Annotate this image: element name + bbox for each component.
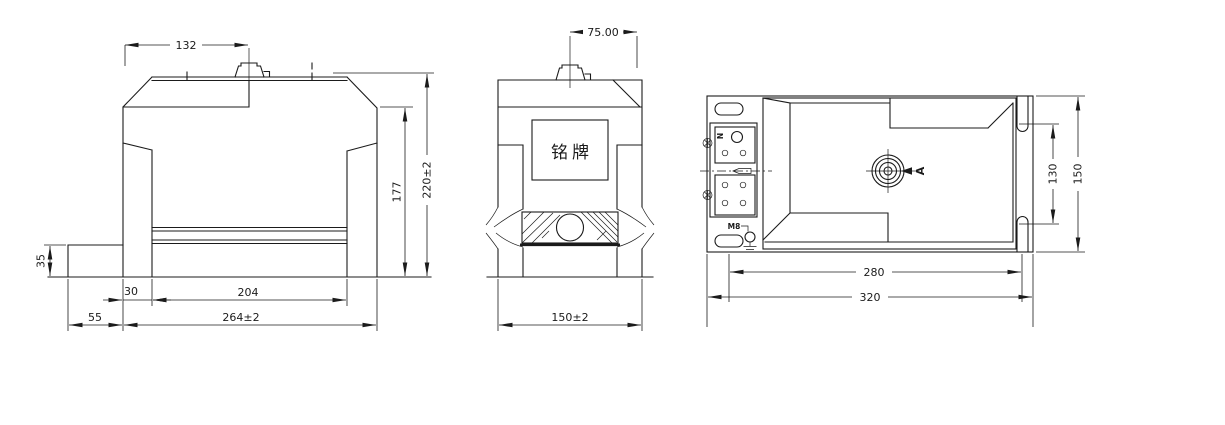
dim-label-130: 130 [1047, 164, 1060, 185]
dim-label-264: 264±2 [222, 311, 259, 324]
dim-overall-height: 220±2 [333, 73, 434, 276]
dim-cap-offset: 75.00 [570, 25, 637, 68]
dim-label-132: 132 [176, 39, 197, 52]
ground-terminal: M8 [728, 222, 757, 250]
view-arrowhead [901, 167, 912, 174]
nameplate-text: 铭牌 [551, 143, 593, 163]
center-hole [557, 214, 584, 241]
top-view: N M8 [700, 96, 1085, 327]
m8-label: M8 [728, 222, 741, 231]
dim-overall-depth: 150 [1036, 96, 1085, 252]
ground-screw [745, 232, 755, 242]
dim-leg-width: 30 [103, 285, 171, 300]
dim-step-width: 55 [69, 311, 122, 325]
view-a-label: A [914, 166, 927, 175]
hatch-lines-left [522, 212, 560, 243]
mount-slot-bottom-left [715, 235, 743, 247]
dim-top-width: 320 [707, 254, 1033, 327]
side-view: 铭牌 75.00 150±2 [486, 25, 654, 331]
neutral-hole [732, 132, 743, 143]
terminal-screw-top [703, 139, 712, 148]
terminal-screw-bottom [703, 191, 712, 200]
dim-label-204: 204 [238, 286, 259, 299]
dim-terminal-offset: 132 [125, 38, 248, 66]
mount-slot-top-left [715, 103, 743, 115]
front-step-bracket [68, 245, 123, 277]
drawing-svg: 132 177 220±2 35 30 [0, 0, 1225, 425]
dim-inner-width: 204 [153, 286, 346, 300]
dim-label-220: 220±2 [421, 161, 434, 198]
dim-inner-height: 177 [380, 107, 413, 276]
nameplate: 铭牌 [532, 120, 608, 180]
front-mounting-rails [152, 228, 347, 244]
dim-label-150pm2: 150±2 [551, 311, 588, 324]
dim-label-30: 30 [124, 285, 138, 298]
ground-symbol [744, 242, 757, 250]
side-lower-legs [498, 248, 642, 277]
mount-slot-top-right [1017, 96, 1028, 132]
side-hatch-band [520, 212, 620, 245]
dim-label-55: 55 [88, 311, 102, 324]
side-cap-terminal [556, 65, 591, 80]
top-base-plate [707, 96, 1033, 252]
engineering-drawing: 132 177 220±2 35 30 [0, 0, 1225, 425]
dim-label-280: 280 [864, 266, 885, 279]
front-view: 132 177 220±2 35 30 [35, 38, 435, 331]
dim-step-height: 35 [35, 245, 67, 276]
dim-label-320: 320 [860, 291, 881, 304]
mount-slot-bottom-right [1017, 217, 1028, 253]
dim-overall-width: 264±2 [124, 311, 376, 325]
secondary-terminal-block: N [700, 123, 772, 217]
front-raised-panel [123, 81, 249, 108]
front-cap-terminal [235, 63, 270, 77]
dim-label-75: 75.00 [587, 26, 619, 39]
dim-label-35: 35 [35, 254, 48, 268]
dim-slot-span: 130 [1019, 124, 1060, 224]
neutral-label: N [716, 133, 725, 139]
view-arrow: A [901, 166, 927, 175]
dim-side-width: 150±2 [498, 279, 642, 331]
front-window-taper [123, 143, 377, 277]
hatch-lines-right [581, 212, 618, 243]
dim-label-177: 177 [391, 182, 404, 203]
m8-leader [741, 226, 748, 232]
dim-label-150: 150 [1072, 164, 1085, 185]
